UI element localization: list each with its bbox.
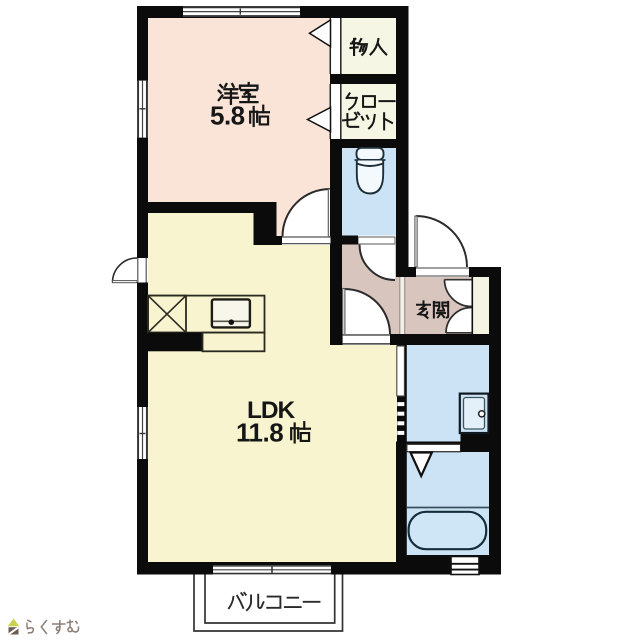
svg-text:5.8: 5.8 [210,101,245,131]
svg-text:11.8: 11.8 [236,418,283,448]
